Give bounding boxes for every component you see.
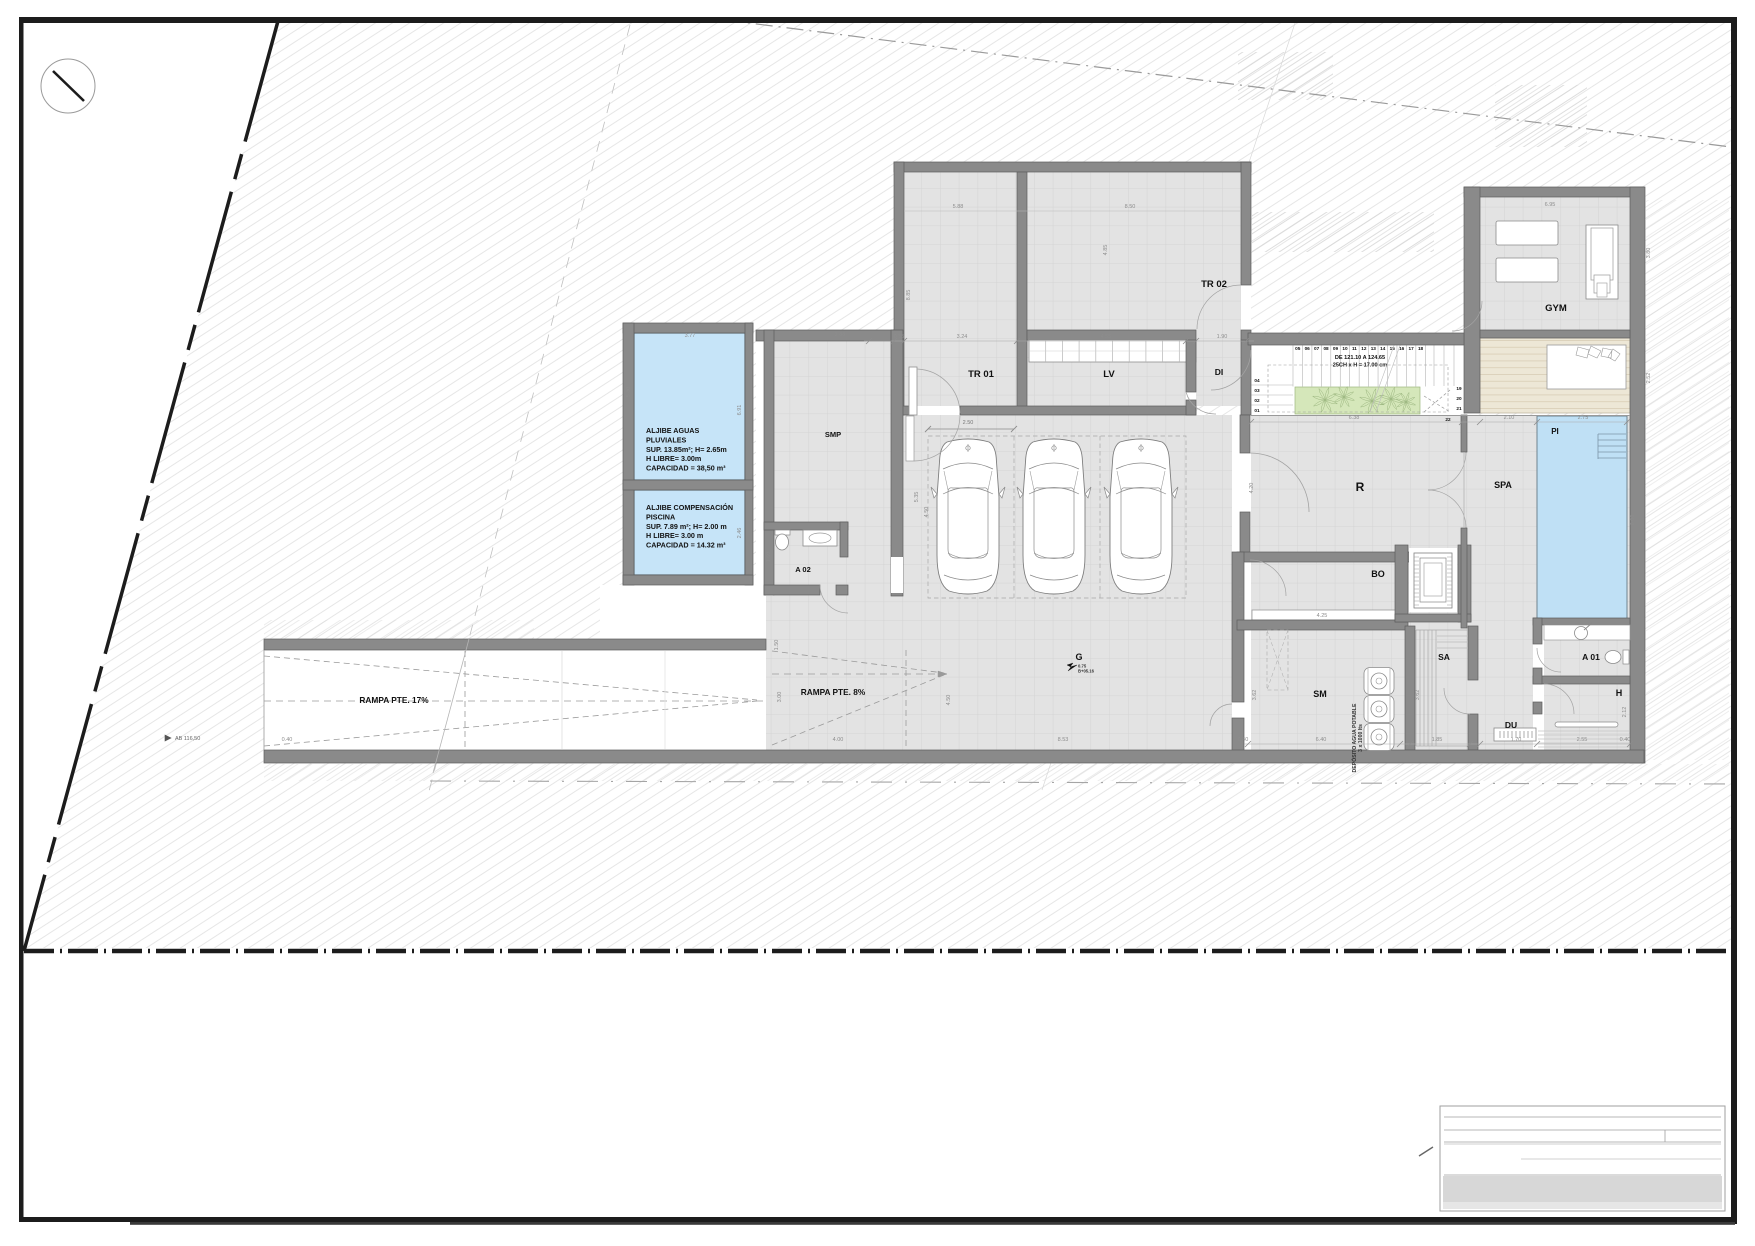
svg-text:ALJIBE AGUAS: ALJIBE AGUAS <box>646 426 699 435</box>
svg-text:PISCINA: PISCINA <box>646 512 675 521</box>
svg-text:4.85: 4.85 <box>1103 245 1109 256</box>
svg-text:09: 09 <box>1333 346 1339 351</box>
svg-text:LV: LV <box>1103 369 1115 380</box>
svg-text:6.38: 6.38 <box>1349 415 1360 421</box>
svg-text:8.50: 8.50 <box>1125 204 1136 210</box>
svg-text:SUP. 13.85m²; H= 2.65m: SUP. 13.85m²; H= 2.65m <box>646 445 727 454</box>
svg-text:16: 16 <box>1399 346 1405 351</box>
svg-text:2.50: 2.50 <box>963 420 974 426</box>
svg-text:3.00: 3.00 <box>777 692 783 703</box>
svg-text:4.50: 4.50 <box>924 507 930 518</box>
svg-text:0.40: 0.40 <box>282 737 293 743</box>
svg-text:14: 14 <box>1380 346 1386 351</box>
svg-text:4.20: 4.20 <box>1249 483 1255 494</box>
svg-text:SMP: SMP <box>825 430 841 439</box>
svg-text:19: 19 <box>1456 386 1462 391</box>
svg-text:05: 05 <box>1295 346 1301 351</box>
svg-text:1.90: 1.90 <box>1217 334 1228 340</box>
svg-text:2.52: 2.52 <box>1646 373 1652 384</box>
svg-text:3.77: 3.77 <box>685 333 696 339</box>
svg-text:13: 13 <box>1371 346 1377 351</box>
svg-text:GYM: GYM <box>1545 303 1567 314</box>
svg-text:3 x 1000 lts: 3 x 1000 lts <box>1358 724 1364 752</box>
svg-text:SM: SM <box>1313 689 1327 699</box>
svg-text:6.91: 6.91 <box>737 405 743 416</box>
svg-text:ALJIBE COMPENSACIÓN: ALJIBE COMPENSACIÓN <box>646 503 733 512</box>
svg-text:3.24: 3.24 <box>957 334 968 340</box>
svg-text:21: 21 <box>1456 406 1462 411</box>
svg-text:8.53: 8.53 <box>1058 737 1069 743</box>
svg-text:08: 08 <box>1323 346 1329 351</box>
svg-text:A 02: A 02 <box>795 565 811 574</box>
svg-text:DI: DI <box>1215 367 1224 377</box>
svg-text:A 01: A 01 <box>1582 652 1600 662</box>
svg-text:20: 20 <box>1456 396 1462 401</box>
svg-text:0.40: 0.40 <box>1620 737 1631 743</box>
svg-text:DU: DU <box>1505 720 1517 730</box>
svg-text:07: 07 <box>1314 346 1320 351</box>
svg-text:RAMPA PTE. 8%: RAMPA PTE. 8% <box>801 687 866 697</box>
svg-text:H: H <box>1616 688 1623 698</box>
svg-text:06: 06 <box>1305 346 1311 351</box>
svg-text:2.75: 2.75 <box>1578 415 1589 421</box>
svg-text:5.88: 5.88 <box>953 204 964 210</box>
svg-text:10: 10 <box>1342 346 1348 351</box>
svg-text:R: R <box>1356 480 1365 494</box>
svg-text:17: 17 <box>1409 346 1415 351</box>
svg-text:04: 04 <box>1254 378 1260 383</box>
svg-text:2.88: 2.88 <box>835 332 846 338</box>
svg-text:PI: PI <box>1551 427 1559 436</box>
svg-text:3.80: 3.80 <box>1646 248 1652 259</box>
svg-text:AB 116,50: AB 116,50 <box>175 736 200 742</box>
svg-text:6.95: 6.95 <box>1545 202 1556 208</box>
svg-text:11: 11 <box>1352 346 1357 351</box>
svg-text:3.62: 3.62 <box>1252 690 1258 701</box>
svg-text:CAPACIDAD = 14.32 m³: CAPACIDAD = 14.32 m³ <box>646 541 726 550</box>
svg-text:RAMPA PTE. 17%: RAMPA PTE. 17% <box>359 695 429 705</box>
svg-text:1.70: 1.70 <box>1511 737 1522 743</box>
svg-text:SUP. 7.89 m²; H= 2.00 m: SUP. 7.89 m²; H= 2.00 m <box>646 522 727 531</box>
svg-text:TR 02: TR 02 <box>1201 279 1227 290</box>
svg-text:0.40: 0.40 <box>1238 737 1249 743</box>
svg-text:G: G <box>1075 652 1082 662</box>
svg-text:5.35: 5.35 <box>914 492 920 503</box>
svg-text:PLUVIALES: PLUVIALES <box>646 435 687 444</box>
svg-text:SPA: SPA <box>1494 480 1512 490</box>
svg-text:H LIBRE= 3.00 m: H LIBRE= 3.00 m <box>646 531 703 540</box>
svg-text:4.50: 4.50 <box>946 695 952 706</box>
svg-text:03: 03 <box>1254 388 1260 393</box>
svg-text:6.08: 6.08 <box>1630 515 1636 526</box>
svg-text:0.35: 0.35 <box>894 334 905 340</box>
svg-text:1.78: 1.78 <box>1239 588 1245 599</box>
svg-text:12: 12 <box>1361 346 1367 351</box>
svg-text:22: 22 <box>1445 417 1451 422</box>
svg-text:H LIBRE= 3.00m: H LIBRE= 3.00m <box>646 454 701 463</box>
svg-text:2.12: 2.12 <box>1622 707 1628 718</box>
svg-text:6.40: 6.40 <box>1316 737 1327 743</box>
svg-text:4.25: 4.25 <box>1317 613 1328 619</box>
svg-text:1.60: 1.60 <box>766 552 772 563</box>
svg-text:TR 01: TR 01 <box>968 369 995 380</box>
svg-text:2.55: 2.55 <box>1577 737 1588 743</box>
svg-text:4.55: 4.55 <box>1101 334 1112 340</box>
svg-text:5.80: 5.80 <box>626 387 632 398</box>
svg-text:DEPÓSITO AGUA POTABLE: DEPÓSITO AGUA POTABLE <box>1350 703 1358 772</box>
svg-text:4.00: 4.00 <box>833 737 844 743</box>
svg-text:2.10: 2.10 <box>1504 415 1515 421</box>
svg-text:01: 01 <box>1254 408 1260 413</box>
svg-text:BO: BO <box>1371 569 1385 579</box>
svg-text:3.62: 3.62 <box>1415 690 1421 701</box>
svg-text:1.50: 1.50 <box>774 640 780 651</box>
svg-text:DE 121.10 A 124.65: DE 121.10 A 124.65 <box>1335 355 1385 361</box>
svg-text:B+05.16: B+05.16 <box>1078 669 1095 674</box>
svg-text:18: 18 <box>1418 346 1424 351</box>
svg-text:CAPACIDAD = 38,50 m³: CAPACIDAD = 38,50 m³ <box>646 464 726 473</box>
svg-text:1.85: 1.85 <box>1432 737 1443 743</box>
svg-text:25CH x H = 17.00 cm: 25CH x H = 17.00 cm <box>1333 363 1388 369</box>
svg-text:SA: SA <box>1438 652 1450 662</box>
svg-text:8.85: 8.85 <box>906 290 912 301</box>
svg-text:2.46: 2.46 <box>737 528 743 539</box>
svg-text:02: 02 <box>1254 398 1260 403</box>
